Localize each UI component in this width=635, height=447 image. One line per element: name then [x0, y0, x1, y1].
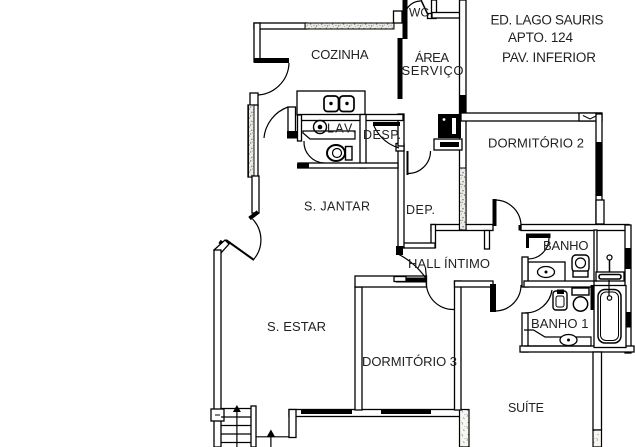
- svg-text:DORMITÓRIO 3: DORMITÓRIO 3: [362, 354, 457, 369]
- svg-text:WC: WC: [409, 6, 429, 20]
- svg-text:BANHO 1: BANHO 1: [531, 316, 589, 331]
- svg-text:DORMITÓRIO 2: DORMITÓRIO 2: [488, 136, 584, 151]
- svg-text:ED. LAGO SAURIS: ED. LAGO SAURIS: [491, 13, 604, 28]
- svg-text:COZINHA: COZINHA: [311, 47, 369, 62]
- svg-text:LAV.: LAV.: [327, 122, 356, 136]
- svg-text:S. JANTAR: S. JANTAR: [304, 200, 370, 214]
- svg-text:SUÍTE: SUÍTE: [508, 400, 544, 415]
- svg-text:SERVIÇO: SERVIÇO: [402, 63, 464, 78]
- svg-text:HALL ÍNTIMO: HALL ÍNTIMO: [408, 256, 490, 271]
- svg-text:S. ESTAR: S. ESTAR: [267, 319, 326, 334]
- svg-text:DEP.: DEP.: [406, 203, 435, 217]
- svg-text:DESP.: DESP.: [363, 128, 401, 142]
- svg-text:APTO. 124: APTO. 124: [508, 30, 573, 45]
- svg-text:PAV. INFERIOR: PAV. INFERIOR: [502, 50, 596, 65]
- svg-text:BANHO: BANHO: [543, 238, 589, 253]
